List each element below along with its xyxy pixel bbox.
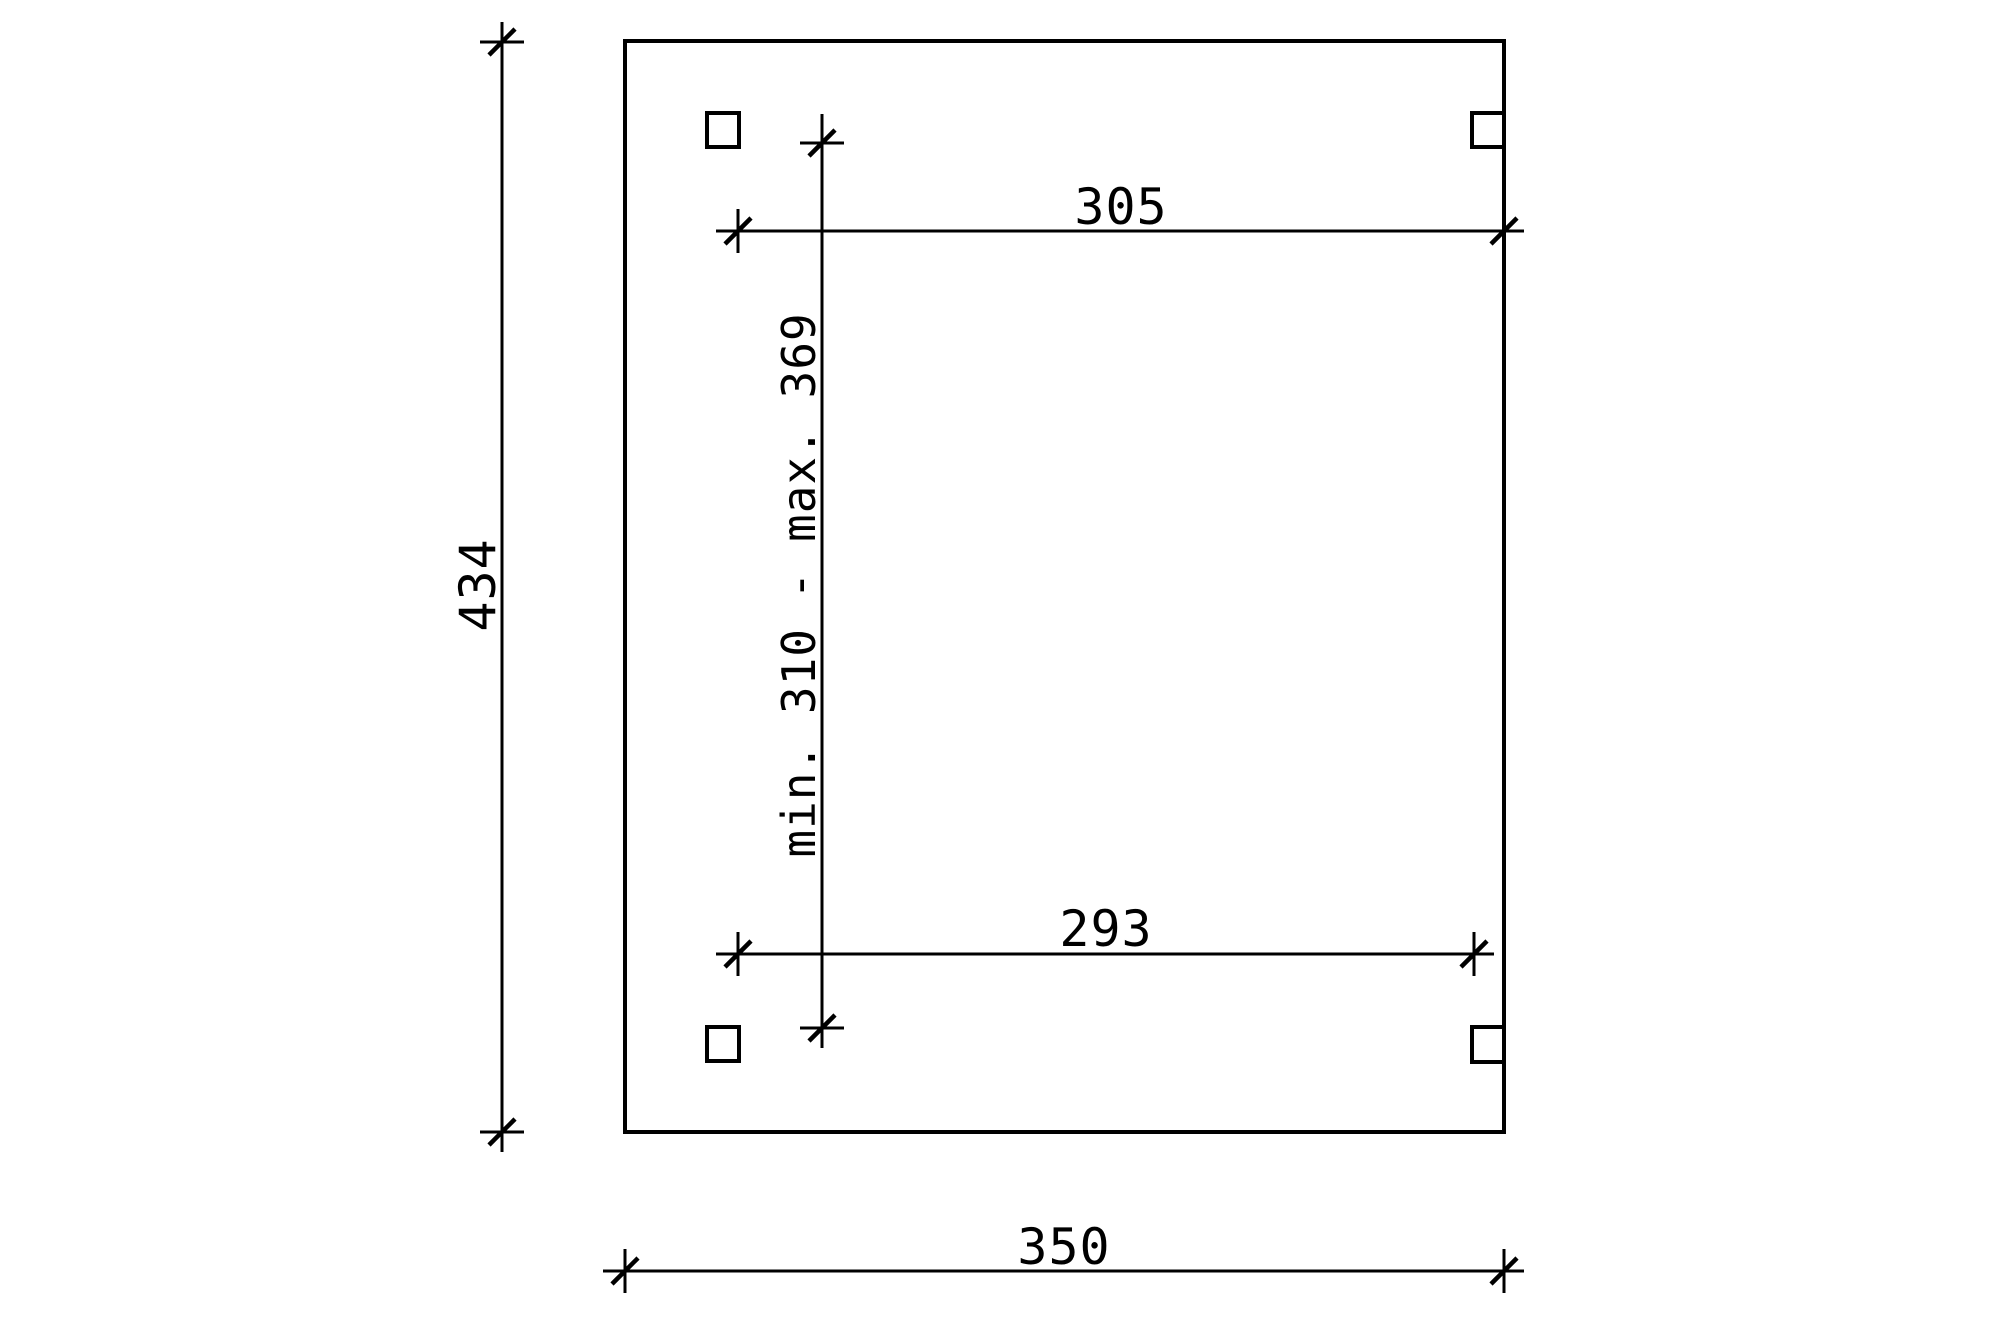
structure-outline <box>625 41 1504 1132</box>
dim-post-spacing-label: min. 310 - max. 369 <box>772 312 826 857</box>
technical-drawing-canvas: 434 305 min. 310 - max. 369 2 <box>0 0 2000 1333</box>
post-top-left <box>707 113 739 147</box>
dim-width-bottom-label: 350 <box>1017 1218 1110 1276</box>
dim-width-bottom: 350 <box>603 1218 1524 1293</box>
post-bottom-right <box>1472 1027 1504 1062</box>
dim-width-top-label: 305 <box>1074 178 1167 236</box>
dim-width-inner: 293 <box>716 900 1494 976</box>
dim-height-left: 434 <box>449 22 524 1152</box>
dim-width-top: 305 <box>716 178 1524 253</box>
carport-ground-plan: 434 305 min. 310 - max. 369 2 <box>0 0 2000 1333</box>
structure-outline-group <box>625 41 1504 1132</box>
post-top-right <box>1472 113 1504 147</box>
dim-height-left-label: 434 <box>449 538 507 631</box>
dim-post-spacing: min. 310 - max. 369 <box>772 114 844 1048</box>
post-bottom-left <box>707 1027 739 1061</box>
dim-width-inner-label: 293 <box>1059 900 1152 958</box>
